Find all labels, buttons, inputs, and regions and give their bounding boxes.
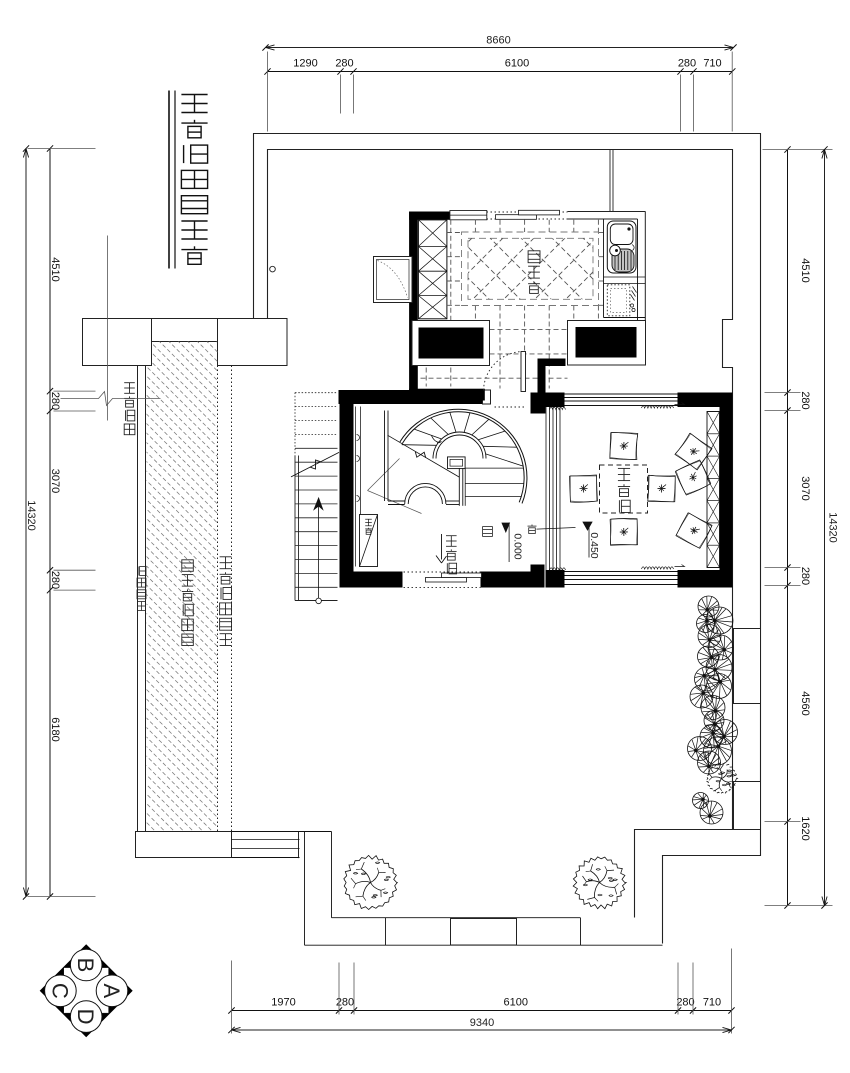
svg-text:14320: 14320 (25, 500, 37, 531)
svg-text:1970: 1970 (271, 997, 295, 1009)
svg-text:280: 280 (799, 567, 811, 585)
svg-text:3070: 3070 (49, 469, 61, 493)
svg-text:1290: 1290 (293, 58, 317, 70)
svg-text:6100: 6100 (505, 58, 529, 70)
svg-text:B: B (73, 958, 98, 973)
svg-text:8660: 8660 (486, 35, 510, 47)
svg-text:9340: 9340 (470, 1017, 494, 1029)
svg-text:1620: 1620 (799, 816, 811, 840)
svg-text:0.000: 0.000 (512, 533, 524, 559)
svg-text:4510: 4510 (799, 258, 811, 282)
svg-text:710: 710 (703, 58, 721, 70)
svg-text:3070: 3070 (799, 476, 811, 500)
svg-text:D: D (73, 1009, 98, 1025)
svg-text:6180: 6180 (49, 717, 61, 741)
svg-text:6100: 6100 (504, 997, 528, 1009)
svg-text:280: 280 (49, 571, 61, 589)
svg-text:280: 280 (799, 391, 811, 409)
svg-text:0.450: 0.450 (588, 532, 600, 558)
svg-text:280: 280 (335, 58, 353, 70)
svg-text:C: C (47, 983, 72, 999)
svg-text:280: 280 (336, 997, 354, 1009)
svg-text:280: 280 (49, 392, 61, 410)
svg-text:710: 710 (703, 997, 721, 1009)
svg-text:280: 280 (676, 997, 694, 1009)
svg-text:14320: 14320 (827, 512, 839, 543)
svg-text:A: A (99, 983, 124, 998)
svg-text:4560: 4560 (799, 691, 811, 715)
svg-text:4510: 4510 (49, 257, 61, 281)
svg-text:280: 280 (678, 58, 696, 70)
